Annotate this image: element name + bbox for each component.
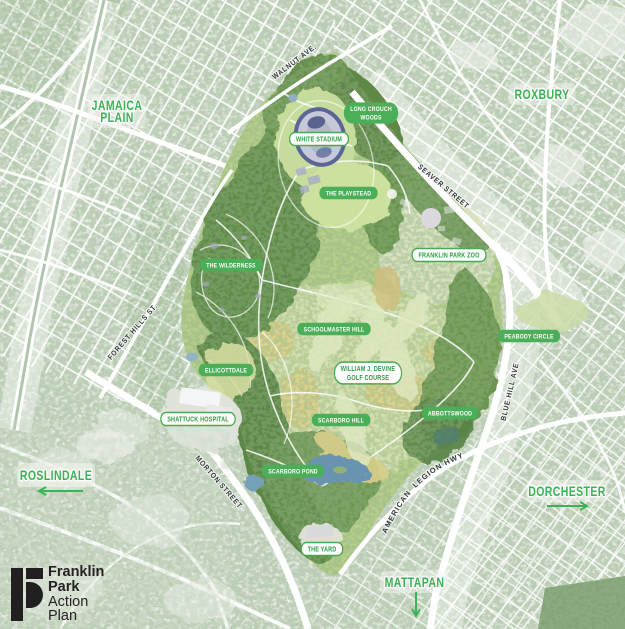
svg-text:PEABODY CIRCLE: PEABODY CIRCLE — [504, 334, 553, 341]
svg-text:FRANKLIN PARK ZOO: FRANKLIN PARK ZOO — [418, 252, 479, 260]
svg-text:SCARBORO HILL: SCARBORO HILL — [318, 418, 364, 425]
svg-text:WILLIAM J. DEVINE: WILLIAM J. DEVINE — [341, 365, 395, 373]
svg-text:SCHOOLMASTER HILL: SCHOOLMASTER HILL — [304, 327, 365, 334]
svg-text:PLAIN: PLAIN — [100, 110, 134, 126]
svg-text:SHATTUCK HOSPITAL: SHATTUCK HOSPITAL — [167, 416, 229, 424]
svg-text:DORCHESTER: DORCHESTER — [528, 484, 606, 500]
svg-text:SEAVER STREET: SEAVER STREET — [416, 163, 470, 210]
svg-text:LONG CROUCH: LONG CROUCH — [350, 106, 392, 113]
svg-text:FOREST HILLS ST.: FOREST HILLS ST. — [107, 303, 160, 362]
svg-text:SCARBORO POND: SCARBORO POND — [268, 469, 318, 476]
svg-text:GOLF COURSE: GOLF COURSE — [347, 374, 389, 382]
svg-text:ABBOTTSWOOD: ABBOTTSWOOD — [428, 411, 473, 418]
svg-text:WALNUT AVE.: WALNUT AVE. — [271, 43, 318, 81]
svg-text:WOODS: WOODS — [360, 115, 381, 122]
svg-text:AMERICAN LEGION HWY: AMERICAN LEGION HWY — [380, 450, 465, 534]
svg-text:MATTAPAN: MATTAPAN — [385, 575, 445, 591]
svg-text:ELLICOTTDALE: ELLICOTTDALE — [205, 368, 247, 375]
svg-text:ROXBURY: ROXBURY — [515, 87, 570, 103]
svg-text:MORTON STREET: MORTON STREET — [193, 455, 243, 511]
svg-text:BLUE HILL AVE: BLUE HILL AVE — [500, 362, 521, 421]
svg-text:ROSLINDALE: ROSLINDALE — [20, 468, 92, 484]
svg-text:THE YARD: THE YARD — [308, 546, 337, 554]
svg-text:THE WILDERNESS: THE WILDERNESS — [206, 263, 255, 270]
svg-text:THE PLAYSTEAD: THE PLAYSTEAD — [326, 191, 372, 198]
svg-text:WHITE STADIUM: WHITE STADIUM — [296, 136, 342, 144]
